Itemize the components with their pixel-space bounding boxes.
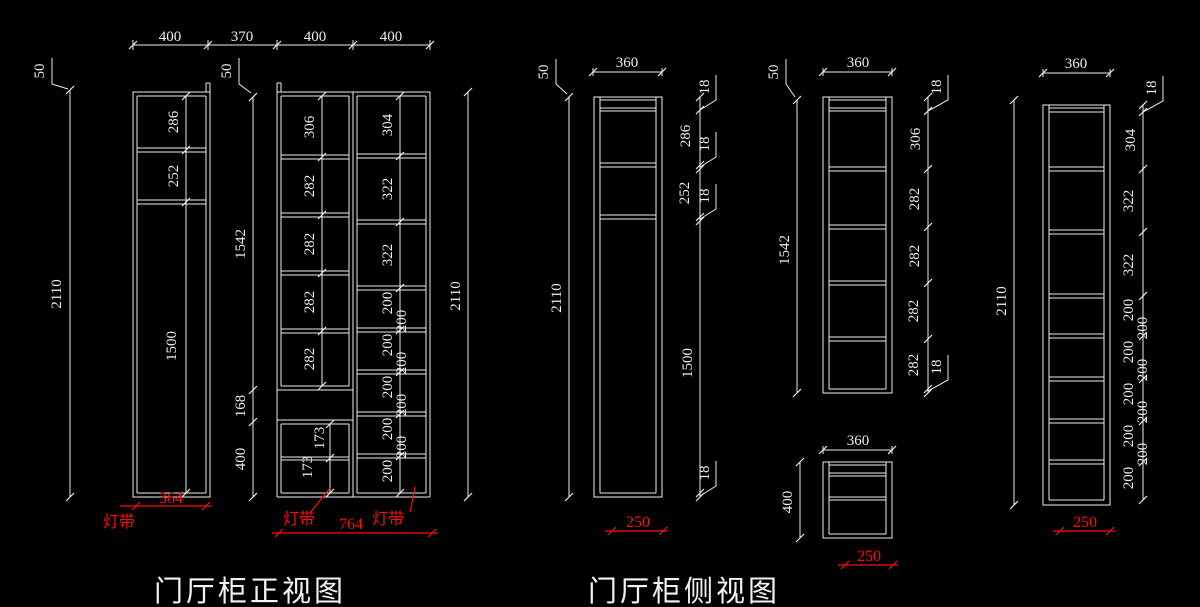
dim-v1-chain-2: 18 bbox=[697, 137, 713, 152]
dim-cab1-section-2: 1500 bbox=[164, 331, 180, 361]
dim-cab1-section-0: 286 bbox=[166, 110, 182, 133]
side-view-title: 门厅柜侧视图 bbox=[588, 575, 780, 607]
dim-v1-chain-1: 286 bbox=[678, 124, 694, 147]
dim-cab2-col1-1: 282 bbox=[302, 175, 318, 198]
dim-v1-offset: 50 bbox=[536, 65, 552, 80]
dim-v2-chain-0: 18 bbox=[929, 80, 945, 95]
dim-cab2-left-2: 400 bbox=[233, 448, 249, 471]
light-strip-label-3: 灯带 bbox=[372, 510, 404, 528]
dim-cab2-col2-11: 200 bbox=[380, 460, 396, 483]
dim-v3-chain-2: 322 bbox=[1121, 190, 1137, 213]
side-view3-structure bbox=[1043, 105, 1110, 505]
dim-v2-chain-6: 18 bbox=[929, 360, 945, 375]
dim-cab2-col2-0: 304 bbox=[380, 113, 396, 136]
dim-cab2-base-0: 173 bbox=[312, 427, 328, 450]
dim-v3-chain-5: 200 bbox=[1135, 317, 1151, 340]
light-strip-label-2: 灯带 bbox=[283, 510, 315, 528]
side-base-view-structure bbox=[823, 462, 892, 538]
dim-height-cab1: 2110 bbox=[49, 279, 65, 308]
dim-v1-chain-5: 1500 bbox=[680, 348, 696, 378]
front-cabinet2-structure bbox=[277, 83, 430, 497]
dim-cab2-col2-10: 200 bbox=[394, 436, 410, 459]
side-dimension-ticks bbox=[565, 68, 1147, 542]
dim-v2-chain-4: 282 bbox=[906, 300, 922, 323]
dim-v2-depth: 360 bbox=[847, 55, 870, 71]
dim-cab2-col2-4: 200 bbox=[394, 310, 410, 333]
dim-v3-chain-11: 200 bbox=[1135, 443, 1151, 466]
dim-v1-height: 2110 bbox=[549, 283, 565, 312]
dim-v1-chain-6: 18 bbox=[697, 466, 713, 481]
front-dimension-lines bbox=[52, 40, 468, 497]
front-dimension-ticks bbox=[66, 41, 472, 501]
light-strip-label-1: 灯带 bbox=[103, 513, 135, 531]
front-view-title: 门厅柜正视图 bbox=[154, 575, 346, 607]
dim-v3-chain-7: 200 bbox=[1135, 359, 1151, 382]
side-view2-structure bbox=[823, 97, 892, 393]
dim-v3-height: 2110 bbox=[994, 286, 1010, 315]
dim-red-364: 364 bbox=[159, 490, 183, 507]
dim-offset-cab1: 50 bbox=[32, 64, 48, 79]
dim-cab2-col1-4: 282 bbox=[302, 348, 318, 371]
dim-v1-red-depth: 250 bbox=[626, 514, 650, 531]
dim-v1-depth: 360 bbox=[616, 55, 639, 71]
dim-v3-chain-3: 322 bbox=[1121, 254, 1137, 277]
dim-cab2-col1-0: 306 bbox=[302, 115, 318, 138]
dim-v3-chain-9: 200 bbox=[1135, 401, 1151, 424]
dim-v3-depth: 360 bbox=[1065, 56, 1088, 72]
dim-v2-offset: 50 bbox=[766, 65, 782, 80]
dim-base-red-depth: 250 bbox=[857, 548, 881, 565]
dim-cab2-left-0: 1542 bbox=[233, 229, 249, 259]
dim-height-cab2: 2110 bbox=[448, 281, 464, 310]
dim-top-2: 400 bbox=[304, 29, 327, 45]
dim-v2-chain-3: 282 bbox=[907, 245, 923, 268]
dim-cab2-base-1: 173 bbox=[300, 456, 316, 479]
dim-v1-chain-3: 252 bbox=[677, 182, 693, 205]
drawing: 400 370 400 400 50 2110 286 252 1500 364… bbox=[0, 0, 1200, 607]
front-view: 400 370 400 400 50 2110 286 252 1500 364… bbox=[32, 29, 472, 607]
dim-v3-chain-0: 18 bbox=[1144, 81, 1160, 96]
dim-v2-chain-2: 282 bbox=[907, 188, 923, 211]
front-cabinet1-structure bbox=[133, 83, 210, 497]
dim-v2-chain-1: 306 bbox=[908, 127, 924, 150]
dim-cab2-col1-2: 282 bbox=[302, 233, 318, 256]
dim-v2-chain-5: 282 bbox=[906, 354, 922, 377]
dim-cab2-col1-3: 282 bbox=[302, 291, 318, 314]
dim-red-764: 764 bbox=[339, 516, 363, 533]
dim-v1-chain-4: 18 bbox=[697, 189, 713, 204]
dim-offset-cab2: 50 bbox=[219, 64, 235, 79]
dim-cab2-col2-8: 200 bbox=[394, 394, 410, 417]
dim-top-1: 370 bbox=[231, 29, 254, 45]
cad-canvas: 400 370 400 400 50 2110 286 252 1500 364… bbox=[0, 0, 1200, 607]
dim-cab2-col2-1: 322 bbox=[380, 178, 396, 201]
side-view: 360 50 2110 18 286 18 252 18 1500 18 250… bbox=[536, 55, 1163, 607]
dim-base-height: 400 bbox=[780, 491, 796, 514]
dim-base-depth: 360 bbox=[847, 433, 870, 449]
dim-cab2-col2-2: 322 bbox=[380, 244, 396, 267]
dim-top-0: 400 bbox=[159, 29, 182, 45]
dim-v1-chain-0: 18 bbox=[697, 80, 713, 95]
dim-top-3: 400 bbox=[380, 29, 403, 45]
side-view1-structure bbox=[594, 97, 662, 497]
dim-v3-red-depth: 250 bbox=[1073, 514, 1097, 531]
dim-cab1-section-1: 252 bbox=[166, 165, 182, 188]
dim-v3-chain-1: 304 bbox=[1123, 128, 1139, 151]
dim-v3-chain-12: 200 bbox=[1121, 467, 1137, 490]
dim-v2-height: 1542 bbox=[777, 235, 793, 265]
dim-cab2-col2-6: 200 bbox=[394, 352, 410, 375]
dim-cab2-left-1: 168 bbox=[233, 395, 249, 418]
